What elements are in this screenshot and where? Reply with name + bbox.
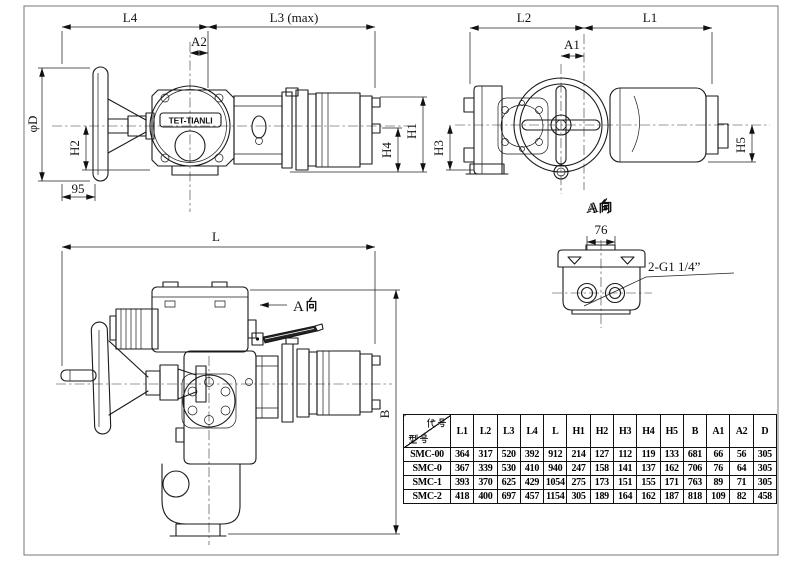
value-cell: 681 bbox=[683, 448, 706, 462]
value-cell: 364 bbox=[451, 448, 474, 462]
electronics-housing bbox=[152, 282, 256, 352]
value-cell: 76 bbox=[707, 462, 730, 476]
value-cell: 137 bbox=[637, 462, 660, 476]
table-row: SMC-241840069745711543051891641621878181… bbox=[404, 490, 777, 504]
column-header: H3 bbox=[613, 415, 636, 448]
value-cell: 818 bbox=[683, 490, 706, 504]
value-cell: 706 bbox=[683, 462, 706, 476]
cjk-hao-icon bbox=[437, 418, 447, 428]
value-cell: 530 bbox=[497, 462, 520, 476]
column-header: L1 bbox=[451, 415, 474, 448]
table-corner-cell: 代号 型号 bbox=[404, 415, 451, 448]
brand-label: TET-TIANLI bbox=[169, 116, 213, 126]
column-header: H2 bbox=[590, 415, 613, 448]
dim-H5: H5 bbox=[733, 137, 748, 153]
value-cell: 56 bbox=[730, 448, 753, 462]
dim-H1: H1 bbox=[404, 123, 419, 139]
dim-A1: A1 bbox=[564, 37, 580, 52]
cjk-xing-icon bbox=[408, 434, 418, 444]
value-cell: 393 bbox=[451, 476, 474, 490]
column-header: H4 bbox=[637, 415, 660, 448]
model-cell: SMC-2 bbox=[404, 490, 451, 504]
value-cell: 164 bbox=[613, 490, 636, 504]
value-cell: 458 bbox=[753, 490, 776, 504]
terminal-box bbox=[110, 309, 158, 349]
dim-H2: H2 bbox=[67, 140, 82, 156]
column-header: A2 bbox=[730, 415, 753, 448]
value-cell: 214 bbox=[567, 448, 590, 462]
gearcase-main bbox=[176, 351, 278, 464]
column-header: A1 bbox=[707, 415, 730, 448]
value-cell: 155 bbox=[637, 476, 660, 490]
value-cell: 370 bbox=[474, 476, 497, 490]
value-cell: 1154 bbox=[544, 490, 567, 504]
column-header: L3 bbox=[497, 415, 520, 448]
motor-main bbox=[282, 338, 380, 422]
xiang-icon bbox=[307, 298, 315, 311]
column-header: H1 bbox=[567, 415, 590, 448]
value-cell: 429 bbox=[520, 476, 543, 490]
value-cell: 151 bbox=[613, 476, 636, 490]
value-cell: 141 bbox=[613, 462, 636, 476]
corner-top-glyphs bbox=[426, 418, 447, 428]
view-side: TET-TIANLI L4 L3 (max) bbox=[25, 10, 427, 212]
column-header: L bbox=[544, 415, 567, 448]
value-cell: 189 bbox=[590, 490, 613, 504]
value-cell: 305 bbox=[567, 490, 590, 504]
value-cell: 763 bbox=[683, 476, 706, 490]
value-cell: 82 bbox=[730, 490, 753, 504]
column-header: H5 bbox=[660, 415, 683, 448]
value-cell: 305 bbox=[753, 462, 776, 476]
dim-B: B bbox=[377, 409, 392, 418]
dim-H4: H4 bbox=[379, 142, 394, 158]
value-cell: 89 bbox=[707, 476, 730, 490]
dim-L1: L1 bbox=[643, 10, 657, 25]
value-cell: 109 bbox=[707, 490, 730, 504]
dimension-table: 代号 型号 L1L2L3L4LH1H2H3H4H5BA1A2D SMC-0036… bbox=[403, 414, 777, 504]
motor-side bbox=[282, 88, 380, 170]
value-cell: 367 bbox=[451, 462, 474, 476]
value-cell: 64 bbox=[730, 462, 753, 476]
table-body: SMC-003643175203929122141271121191336816… bbox=[404, 448, 777, 504]
value-cell: 66 bbox=[707, 448, 730, 462]
value-cell: 171 bbox=[660, 476, 683, 490]
dim-L3max: L3 (max) bbox=[270, 10, 319, 25]
model-cell: SMC-00 bbox=[404, 448, 451, 462]
value-cell: 71 bbox=[730, 476, 753, 490]
declutch-lever bbox=[252, 324, 323, 345]
value-cell: 119 bbox=[637, 448, 660, 462]
table-row: SMC-003643175203929122141271121191336816… bbox=[404, 448, 777, 462]
dim-76: 76 bbox=[595, 222, 609, 237]
detail-caption-latin: A bbox=[586, 201, 597, 217]
table-row: SMC-036733953041094024715814113716270676… bbox=[404, 462, 777, 476]
dim-L: L bbox=[212, 229, 220, 244]
value-cell: 133 bbox=[660, 448, 683, 462]
lower-housing bbox=[162, 464, 240, 536]
dim-95: 95 bbox=[72, 181, 85, 196]
column-header: D bbox=[753, 415, 776, 448]
model-cell: SMC-0 bbox=[404, 462, 451, 476]
value-cell: 912 bbox=[544, 448, 567, 462]
drawing-canvas: TET-TIANLI L4 L3 (max) bbox=[0, 0, 800, 565]
view-a-annotation: A bbox=[260, 298, 316, 315]
model-cell: SMC-1 bbox=[404, 476, 451, 490]
view-detail-a: A 76 2-G1 1/4” bbox=[552, 200, 734, 328]
handwheel-side bbox=[93, 67, 154, 181]
view-a-annotation-latin: A bbox=[293, 299, 304, 315]
value-cell: 392 bbox=[520, 448, 543, 462]
value-cell: 247 bbox=[567, 462, 590, 476]
corner-bottom-glyphs bbox=[408, 434, 429, 444]
value-cell: 173 bbox=[590, 476, 613, 490]
adapter-side bbox=[234, 96, 282, 164]
value-cell: 457 bbox=[520, 490, 543, 504]
column-header: L4 bbox=[520, 415, 543, 448]
value-cell: 940 bbox=[544, 462, 567, 476]
value-cell: 625 bbox=[497, 476, 520, 490]
dim-L4: L4 bbox=[123, 10, 138, 25]
value-cell: 410 bbox=[520, 462, 543, 476]
dimension-table-wrap: 代号 型号 L1L2L3L4LH1H2H3H4H5BA1A2D SMC-0036… bbox=[403, 414, 777, 504]
table-row: SMC-139337062542910542751731511551717638… bbox=[404, 476, 777, 490]
cjk-hao-icon bbox=[419, 434, 429, 444]
thread-callout: 2-G1 1/4” bbox=[648, 259, 701, 274]
value-cell: 275 bbox=[567, 476, 590, 490]
gear-housing-side: TET-TIANLI bbox=[150, 86, 234, 175]
value-cell: 158 bbox=[590, 462, 613, 476]
value-cell: 697 bbox=[497, 490, 520, 504]
dim-L2: L2 bbox=[517, 10, 531, 25]
table-header-row: 代号 型号 L1L2L3L4LH1H2H3H4H5BA1A2D bbox=[404, 415, 777, 448]
cjk-dai-icon bbox=[426, 418, 436, 428]
view-main: L B A bbox=[56, 229, 400, 545]
value-cell: 112 bbox=[613, 448, 636, 462]
view-front: L2 L1 A1 H3 H5 A bbox=[431, 10, 770, 216]
value-cell: 418 bbox=[451, 490, 474, 504]
value-cell: 305 bbox=[753, 448, 776, 462]
value-cell: 400 bbox=[474, 490, 497, 504]
value-cell: 317 bbox=[474, 448, 497, 462]
value-cell: 305 bbox=[753, 476, 776, 490]
value-cell: 127 bbox=[590, 448, 613, 462]
dim-phiD: φD bbox=[25, 116, 40, 133]
value-cell: 339 bbox=[474, 462, 497, 476]
value-cell: 187 bbox=[660, 490, 683, 504]
value-cell: 162 bbox=[637, 490, 660, 504]
dim-H3: H3 bbox=[431, 140, 446, 156]
value-cell: 520 bbox=[497, 448, 520, 462]
value-cell: 1054 bbox=[544, 476, 567, 490]
dim-A2: A2 bbox=[191, 34, 207, 49]
value-cell: 162 bbox=[660, 462, 683, 476]
bracket-detail bbox=[558, 245, 645, 314]
column-header: B bbox=[683, 415, 706, 448]
column-header: L2 bbox=[474, 415, 497, 448]
